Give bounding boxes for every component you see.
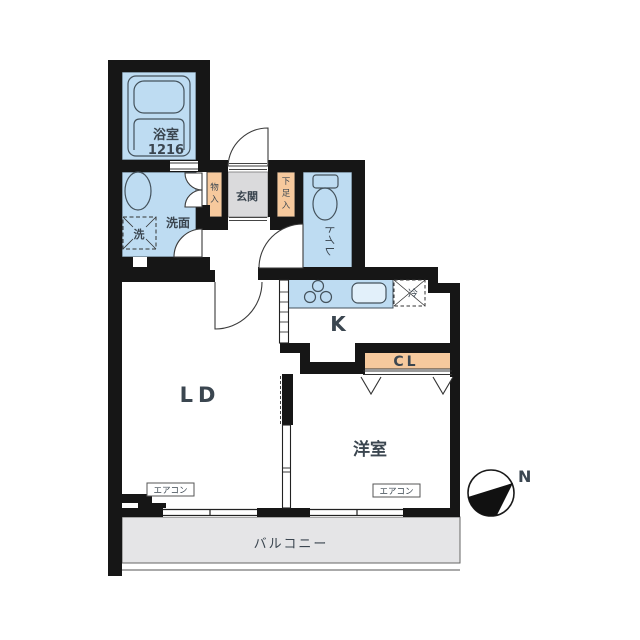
wall-ld-bedroom-upper bbox=[282, 374, 293, 425]
wall-notch bbox=[133, 257, 147, 267]
wall-ld-step-h bbox=[110, 494, 152, 503]
wall-toilet-right bbox=[352, 160, 365, 280]
bathroom-door bbox=[170, 161, 198, 171]
living-label: LD bbox=[180, 383, 221, 407]
shoe-label-char2: 足 bbox=[282, 189, 291, 199]
toilet-door-arc bbox=[259, 224, 303, 268]
wall-ld-step-b bbox=[138, 503, 166, 517]
toilet-label: トイレ bbox=[323, 224, 336, 257]
aircon-label-bedroom: エアコン bbox=[379, 487, 413, 497]
shoe-label-char3: 入 bbox=[282, 201, 291, 211]
shoe-label-char1: 下 bbox=[282, 177, 291, 187]
washroom-label: 洗面 bbox=[166, 215, 190, 230]
compass: N bbox=[468, 467, 531, 516]
bathroom-size-label: 1216 bbox=[148, 143, 184, 158]
kitchen-sink-icon bbox=[352, 283, 386, 303]
wall-under-storage bbox=[202, 217, 228, 230]
entrance-label: 玄関 bbox=[236, 189, 258, 203]
ld-kitchen-partition bbox=[280, 280, 289, 343]
storage-label-char1: 物 bbox=[210, 182, 219, 193]
fridge-label: 冷 bbox=[408, 287, 418, 300]
wall-bath-right bbox=[196, 60, 210, 172]
floor-plan-page: エアコン エアコン N 浴室 1216 洗面 洗 玄関 物 入 下 足 入 トイ… bbox=[0, 0, 640, 640]
kitchen-label: K bbox=[330, 312, 347, 336]
compass-north-label: N bbox=[518, 467, 531, 486]
wall-toilet-top bbox=[268, 160, 365, 172]
bedroom-label: 洋室 bbox=[353, 439, 387, 460]
wall-bedroom-top-left bbox=[300, 362, 362, 374]
storage-label-char2: 入 bbox=[210, 195, 219, 205]
washer-label: 洗 bbox=[134, 227, 145, 241]
wall-ld-top bbox=[122, 270, 215, 282]
entrance-door-arc bbox=[228, 128, 268, 166]
bathroom-label: 浴室 bbox=[153, 127, 179, 143]
wall-bath-top bbox=[108, 60, 210, 72]
closet-doors bbox=[361, 371, 453, 394]
ld-bedroom-partition bbox=[283, 425, 291, 508]
wall-right bbox=[450, 283, 460, 517]
aircon-label-ld: エアコン bbox=[153, 486, 187, 496]
balcony-label: バルコニー bbox=[254, 537, 329, 552]
ld-door-arc bbox=[215, 282, 262, 329]
wall-storage-entrance bbox=[222, 172, 228, 217]
closet-door-mark-1 bbox=[361, 377, 381, 394]
wall-entrance-shoe bbox=[268, 172, 277, 217]
wall-toilet-left bbox=[295, 160, 303, 217]
closet-label: CL bbox=[393, 354, 418, 370]
floor-plan-canvas: エアコン エアコン N 浴室 1216 洗面 洗 玄関 物 入 下 足 入 トイ… bbox=[0, 0, 640, 640]
wall-hall-kitchen-top bbox=[258, 267, 436, 280]
wall-closet-top bbox=[355, 343, 460, 353]
